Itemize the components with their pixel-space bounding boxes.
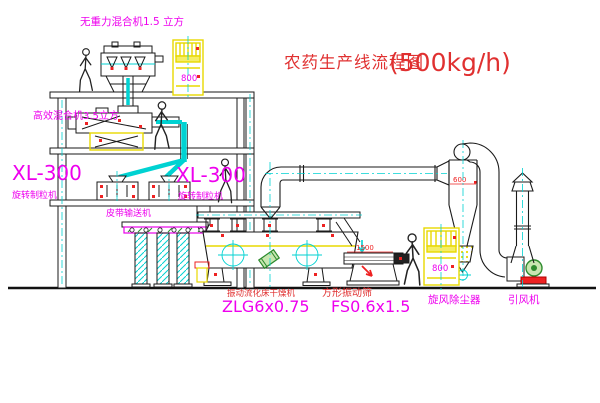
fan-base — [521, 277, 546, 284]
label-xl300-left: XL-300 — [12, 161, 82, 185]
sieve-dim-text: 1500 — [356, 244, 374, 252]
diagram-title-capacity: (500kg/h) — [389, 48, 511, 77]
label-belt-conveyor: 皮带输送机 — [106, 207, 151, 219]
floor-slab-1 — [50, 92, 254, 98]
label-dryer-model: ZLG6x0.75 — [222, 297, 310, 316]
label-xl300-mid: XL-300 — [176, 163, 246, 187]
person-1 — [80, 49, 93, 92]
dryer-left-support-top — [195, 262, 209, 268]
dryer-left-support — [197, 268, 207, 282]
floor-slab-3 — [50, 200, 254, 206]
dryer-supports — [204, 268, 330, 286]
label-xl300-left-sub: 旋转制粒机 — [12, 189, 57, 201]
label-elevator2-800: 800 — [432, 264, 448, 274]
induced-draft-fan — [507, 257, 549, 287]
granulator-left — [97, 176, 138, 200]
label-fan: 引风机 — [508, 293, 540, 306]
label-xl300-mid-sub: 旋转制粒机 — [178, 190, 223, 202]
label-floor2-mixer: 高效混合机3.5立方 — [33, 109, 119, 122]
exhaust-duct — [261, 161, 449, 217]
process-flow-diagram: 600 1500 — [0, 0, 600, 403]
label-cyclone: 旋风除尘器 — [428, 293, 481, 306]
label-sieve-model: FS0.6x1.5 — [331, 297, 410, 316]
cyclone-dim-text: 600 — [453, 176, 466, 184]
floor-slab-2 — [50, 148, 254, 154]
text-labels: 无重力混合机1.5 立方 农药生产线流程图 (500kg/h) 高效混合机3.5… — [12, 15, 540, 316]
label-top-mixer: 无重力混合机1.5 立方 — [80, 15, 184, 28]
person-2 — [155, 102, 169, 149]
cad-drawing: 600 1500 — [0, 0, 600, 403]
label-elevator1-800: 800 — [181, 74, 197, 84]
